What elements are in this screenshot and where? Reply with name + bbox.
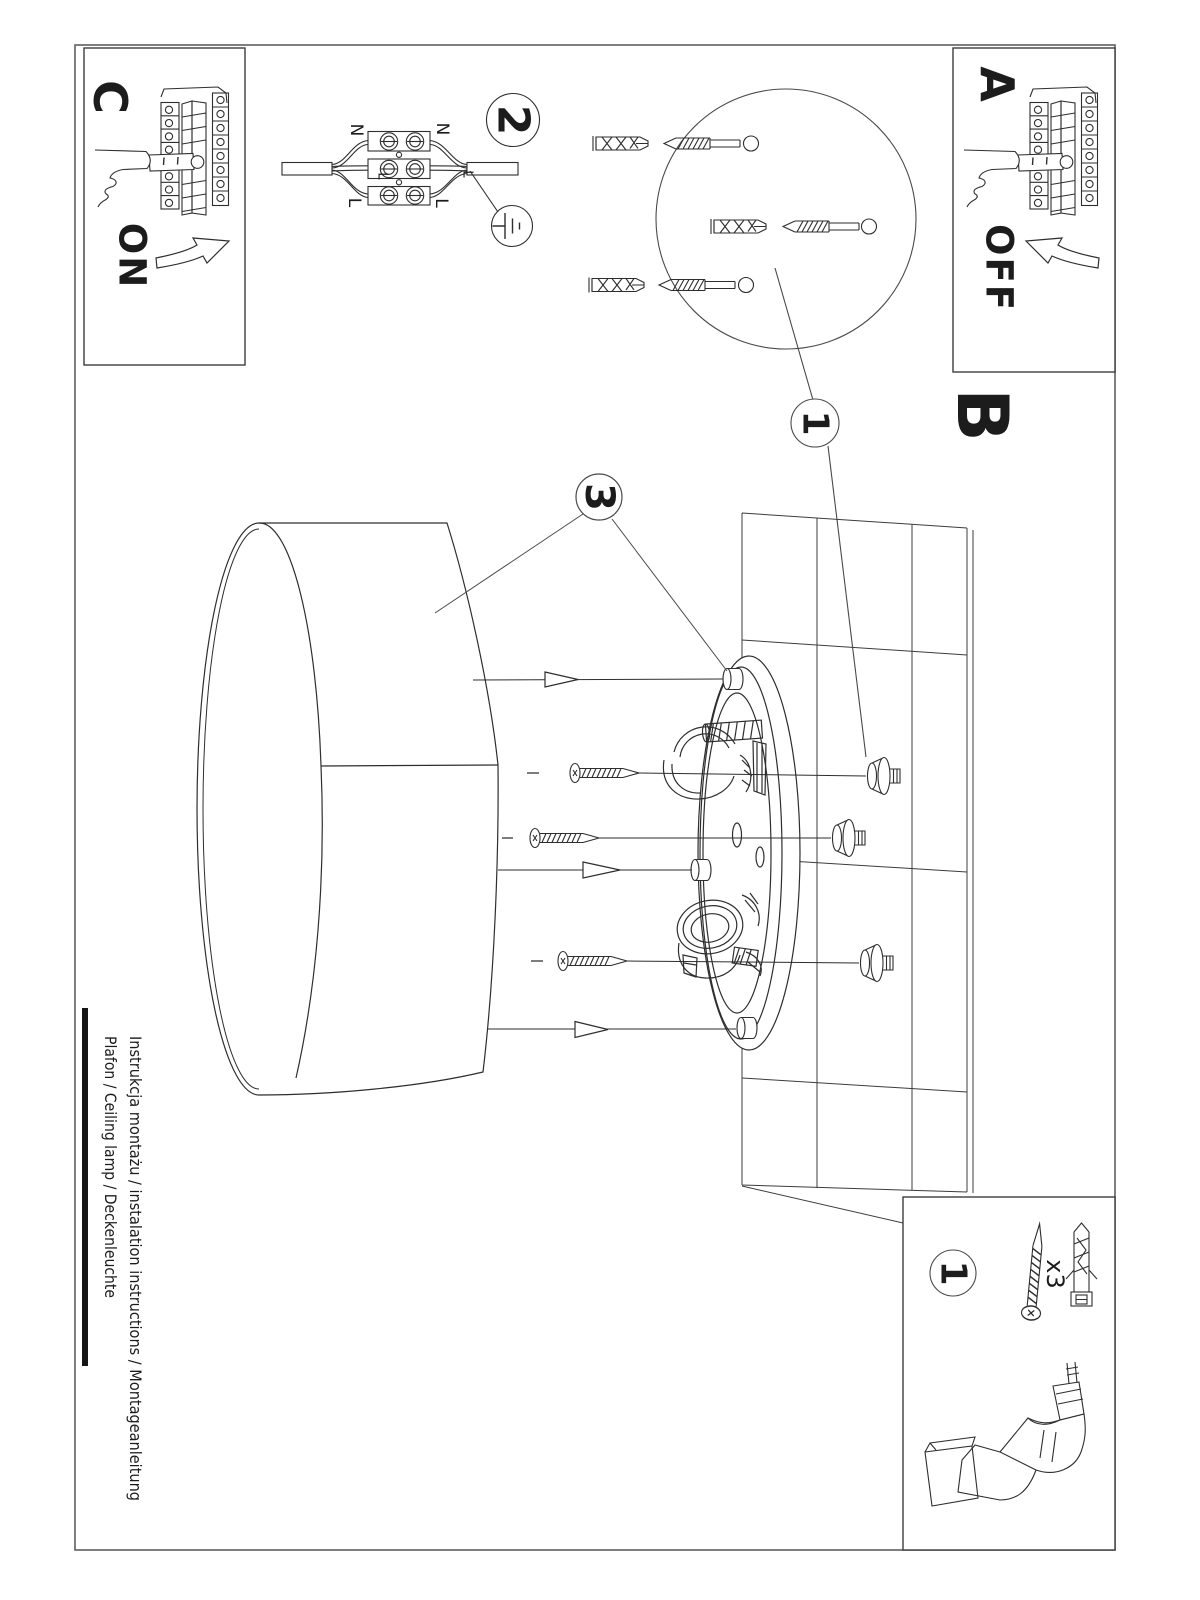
drill-hole-icon: [739, 278, 754, 293]
label-l-left: L: [344, 198, 364, 208]
mounting-screw-icon: [558, 952, 627, 971]
wall-anchor-icon: [833, 820, 866, 857]
detail-circle: [656, 89, 916, 349]
step-c-label: C: [83, 80, 137, 114]
mounting-plate: [698, 656, 800, 1050]
supply-cable-icon: [282, 163, 332, 176]
step-a-panel: A OFF: [953, 48, 1115, 372]
grommet-icon: [737, 1018, 757, 1039]
label-n-right: N: [432, 123, 452, 136]
drill-hole-icon: [744, 136, 759, 151]
parts-callout-number: 1: [933, 1260, 974, 1285]
instruction-drawing: C ON A OFF B: [0, 0, 1200, 1600]
step-b-label: B: [941, 388, 1023, 441]
wall-anchor-icon: [861, 945, 894, 982]
label-l-right: L: [431, 198, 451, 208]
step-c-panel: C ON: [83, 48, 245, 365]
callout-1-number: 1: [795, 410, 836, 435]
instruction-sheet: C ON A OFF B: [0, 0, 1200, 1600]
mounting-screw-icon: [530, 829, 599, 848]
wall-plug-icon: [593, 136, 648, 151]
drill-hole-icon: [862, 219, 877, 234]
screw-icon: [659, 280, 735, 291]
step-a-state-label: OFF: [978, 224, 1021, 312]
callout-2-number: 2: [488, 105, 539, 136]
binding-mark: [82, 1008, 88, 1366]
callout-3: 3: [435, 474, 727, 671]
direction-arrow-icon: [488, 1022, 736, 1038]
terminal-block-icon: [368, 132, 430, 206]
screw-icon: [783, 221, 859, 232]
callout-3-number: 3: [576, 483, 622, 511]
footer-line-instructions: Instrukcja montażu / instalation instruc…: [126, 1036, 145, 1501]
step-a-label: A: [970, 66, 1024, 102]
footer: Instrukcja montażu / instalation instruc…: [101, 1036, 145, 1501]
footer-line-product: Plafon / Ceiling lamp / Deckenleuchte: [101, 1036, 120, 1298]
direction-arrow-icon: [473, 672, 723, 687]
grommet-icon: [691, 860, 711, 881]
ceiling-lamp-shade: [197, 523, 498, 1095]
label-l-mid-left: L: [375, 172, 390, 180]
assembly-drawing: 3: [197, 474, 973, 1223]
label-n-left: N: [346, 124, 366, 137]
parts-box: 1 x3: [903, 1197, 1115, 1550]
direction-arrow-icon: [498, 862, 692, 878]
screw-icon: [664, 138, 740, 149]
grommet-icon: [723, 669, 743, 690]
mounting-screw-icon: [570, 764, 639, 783]
earth-symbol-icon: [492, 206, 533, 247]
quantity-label: x3: [1041, 1259, 1069, 1288]
wiring-diagram: N N L L L L 2: [282, 94, 540, 247]
wall-plug-icon: [589, 278, 644, 293]
wall-plug-icon: [711, 219, 766, 234]
step-c-state-label: ON: [111, 223, 154, 289]
wall-anchor-icon: [868, 758, 901, 795]
